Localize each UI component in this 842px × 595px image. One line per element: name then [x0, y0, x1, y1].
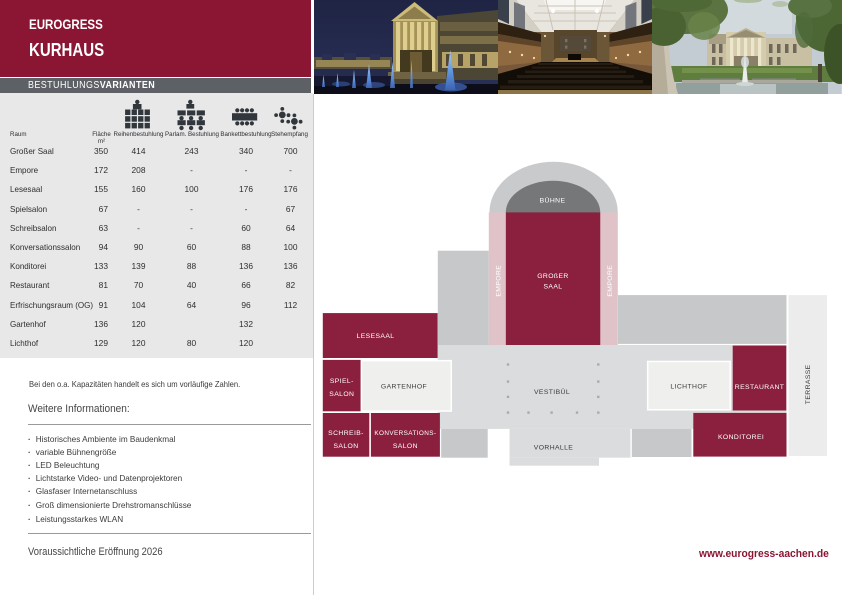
svg-text:EMPORE: EMPORE [607, 265, 614, 297]
svg-text:TERRASSE: TERRASSE [805, 364, 812, 404]
svg-text:KONDITOREI: KONDITOREI [718, 434, 764, 441]
svg-text:VORHALLE: VORHALLE [534, 445, 574, 452]
svg-text:EMPORE: EMPORE [495, 265, 502, 297]
svg-text:LICHTHOF: LICHTHOF [670, 383, 707, 390]
svg-text:KONVERSATIONS-: KONVERSATIONS- [374, 430, 436, 437]
svg-text:VESTIBÜL: VESTIBÜL [534, 388, 570, 396]
svg-text:BÜHNE: BÜHNE [540, 196, 566, 204]
svg-text:SALON: SALON [329, 391, 354, 398]
svg-text:SALON: SALON [393, 443, 418, 450]
svg-text:RESTAURANT: RESTAURANT [735, 384, 785, 391]
svg-text:GROßER: GROßER [537, 273, 568, 280]
svg-text:SALON: SALON [333, 443, 358, 450]
svg-text:GARTENHOF: GARTENHOF [381, 383, 427, 390]
svg-text:LESESAAL: LESESAAL [357, 333, 395, 340]
svg-text:SAAL: SAAL [544, 283, 563, 290]
svg-text:SCHREIB-: SCHREIB- [328, 430, 364, 437]
svg-text:SPIEL-: SPIEL- [330, 378, 354, 385]
